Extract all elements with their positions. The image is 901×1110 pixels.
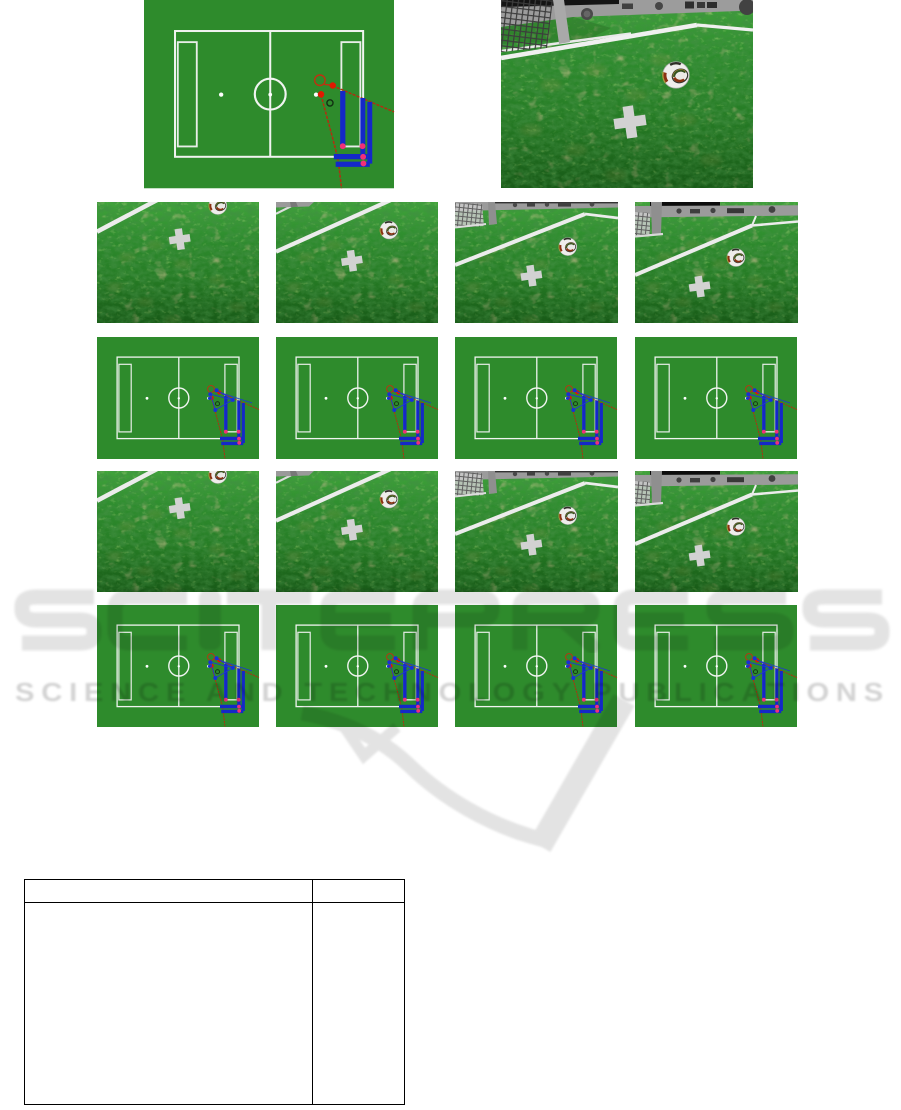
svg-text:SCIENCE AND TECHNOLOGY PUBLICA: SCIENCE AND TECHNOLOGY PUBLICATIONS <box>15 677 890 707</box>
